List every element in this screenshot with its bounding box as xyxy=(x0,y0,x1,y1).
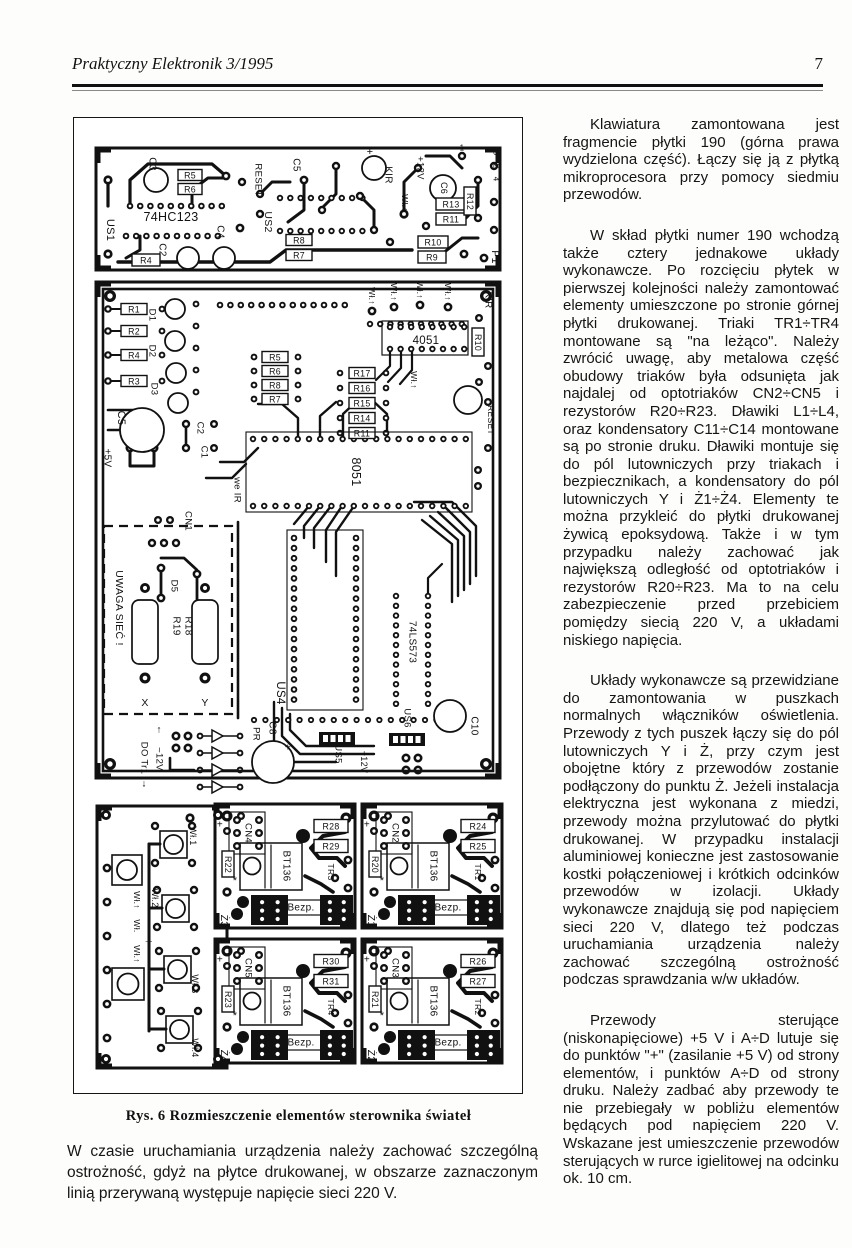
pcb-label: ↑ xyxy=(156,725,161,736)
pcb-ref-label: R27 xyxy=(469,977,486,987)
paragraph-3: Układy wykonawcze są przewidziane do zam… xyxy=(563,672,839,989)
pcb-ref-label: R7 xyxy=(269,395,281,405)
pcb-label-terminal: Ż2 xyxy=(365,1050,378,1063)
pcb-ref-label: R15 xyxy=(353,399,370,409)
pcb-label: Y xyxy=(201,697,208,709)
pcb-label: +12V xyxy=(359,751,369,773)
pcb-ref-label: R2 xyxy=(128,327,140,337)
pcb-label: UWAGA SIEĆ ! xyxy=(113,570,126,646)
pcb-label: Wł.↑ xyxy=(443,283,453,301)
pcb-label: C8 xyxy=(267,721,278,735)
pcb-label: ~12V xyxy=(154,747,165,771)
pcb-label-optotriac: CN5 xyxy=(243,958,254,978)
pcb-label-triac: BT136 xyxy=(281,986,292,1017)
pcb-label: C2 xyxy=(195,422,206,435)
pcb-label: CN1 xyxy=(183,511,194,531)
pcb-label: RESET xyxy=(486,405,496,435)
pcb-ref-label: R20 xyxy=(370,856,380,873)
pcb-label-switch: Wł.1 xyxy=(188,826,198,845)
header-rule xyxy=(72,84,823,91)
pcb-ref-label: R31 xyxy=(322,977,339,987)
pcb-ref-label: R22 xyxy=(223,856,233,873)
pcb-label-switch: Wł.3 xyxy=(190,974,200,993)
pcb-ref-label: R28 xyxy=(322,822,339,832)
pcb-ref-label: R11 xyxy=(443,215,459,225)
pcb-ref-label: R6 xyxy=(184,185,196,195)
pcb-label-triac: BT136 xyxy=(281,851,292,882)
pcb-label: ⊥ xyxy=(145,934,153,944)
pcb-label: C3 xyxy=(147,157,158,171)
pcb-ref-label: R26 xyxy=(469,957,486,967)
pcb-label: C4 xyxy=(215,225,226,239)
pcb-ref-label: R3 xyxy=(128,377,140,387)
pcb-label-fuse: Bezp. xyxy=(434,903,461,914)
pcb-label: Wł.↑ xyxy=(409,371,419,389)
pcb-label: 2 xyxy=(492,164,501,169)
pcb-label: C6 xyxy=(439,182,449,194)
pcb-label: KIR xyxy=(383,166,394,184)
pcb-label-terminal: Ż4 xyxy=(218,1050,231,1063)
pcb-label-fuse: Bezp. xyxy=(434,1038,461,1049)
pcb-ref-label: R6 xyxy=(269,367,281,377)
pcb-label: US4 xyxy=(274,681,286,705)
pcb-label: DO Tr1 xyxy=(139,742,150,774)
pcb-label-optotriac: CN3 xyxy=(390,958,401,978)
magazine-page: Praktyczny Elektronik 3/1995 7 R5R6R4R8R… xyxy=(0,0,852,1248)
pcb-label: TR3 xyxy=(326,864,336,881)
pcb-label: R18 xyxy=(183,616,194,635)
pcb-label: C1 xyxy=(199,446,210,459)
pcb-label-triac: BT136 xyxy=(428,851,439,882)
pcb-label: + xyxy=(367,146,374,158)
pcb-label: +12V xyxy=(415,156,426,180)
pcb-label: TR2 xyxy=(473,999,483,1016)
pcb-label: * xyxy=(233,1010,238,1022)
pcb-ref-label: R8 xyxy=(293,236,305,246)
pcb-label-optotriac: CN2 xyxy=(390,823,401,843)
pcb-label: US2 xyxy=(262,211,274,232)
pcb-label: +5V xyxy=(102,449,113,468)
pcb-label: TR1 xyxy=(473,864,483,881)
pcb-label: Wł.↑ xyxy=(389,283,399,301)
pcb-label: Wł. xyxy=(132,919,142,932)
pcb-ref-label: R8 xyxy=(269,381,281,391)
pcb-ref-label: R1 xyxy=(128,305,140,315)
pcb-label: C2 xyxy=(157,243,168,257)
pcb-label-switch: Wł.4 xyxy=(190,1038,200,1057)
pcb-label: US1 xyxy=(104,219,116,241)
pcb-ref-label: R24 xyxy=(469,822,486,832)
pcb-ref-label: R13 xyxy=(442,200,459,210)
pcb-label: 4 xyxy=(492,177,501,182)
pcb-label-terminal: Ż3 xyxy=(218,915,231,928)
pcb-ref-label: R29 xyxy=(322,842,339,852)
pcb-label-switch: Wł.2 xyxy=(150,888,160,907)
pcb-label: C10 xyxy=(469,716,480,735)
pcb-label: we IR xyxy=(232,476,243,503)
pcb-ref-label: R7 xyxy=(293,251,305,261)
pcb-label: RESET xyxy=(253,163,264,196)
pcb-label: 1 xyxy=(460,144,465,153)
pcb-label: P1 xyxy=(489,250,501,263)
pcb-label: X xyxy=(141,697,148,709)
pcb-label-triac: BT136 xyxy=(428,986,439,1017)
pcb-ref-label: R16 xyxy=(353,384,370,394)
pcb-label: + xyxy=(364,820,370,831)
paragraph-2: W skład płytki numer 190 wchodzą także c… xyxy=(563,227,839,649)
figure-caption: Rys. 6 Rozmieszczenie elementów sterowni… xyxy=(73,1108,524,1125)
pcb-label: D2 xyxy=(147,345,158,358)
pcb-label: KIR xyxy=(483,292,494,309)
pcb-label-fuse: Bezp. xyxy=(287,903,314,914)
pcb-label: Wł.↑ xyxy=(415,281,425,299)
pcb-ref-label: R11 xyxy=(354,429,370,439)
pcb-label: 74HC123 xyxy=(144,210,199,224)
pcb-label: 74LS573 xyxy=(407,621,418,663)
pcb-label: * xyxy=(380,875,385,887)
pcb-svg: R5R6R4R8R7R13R11R10R9R12US1C374HC123C2C4… xyxy=(74,118,522,1093)
pcb-ref-label: R23 xyxy=(223,991,233,1008)
pcb-ref-label: R25 xyxy=(469,842,486,852)
pcb-label: C5 xyxy=(291,158,302,172)
pcb-label: 3 xyxy=(492,151,501,156)
article-column: Klawiatura zamontowana jest fragmencie p… xyxy=(563,116,839,1211)
pcb-label: Wł.↑ xyxy=(132,945,142,963)
warning-paragraph: W czasie uruchamiania urządzenia należy … xyxy=(67,1141,538,1204)
pcb-ref-label: R12 xyxy=(465,193,475,210)
pcb-label: Wł.↑ xyxy=(132,891,142,909)
pcb-label: US6 xyxy=(402,708,413,727)
pcb-label-terminal: Ż1 xyxy=(365,915,378,928)
pcb-label: + xyxy=(285,743,291,754)
pcb-ref-label: R10 xyxy=(424,238,441,248)
pcb-ref-label: R21 xyxy=(370,991,380,1008)
figure-pcb-layout: R5R6R4R8R7R13R11R10R9R12US1C374HC123C2C4… xyxy=(73,117,523,1094)
pcb-ref-label: R5 xyxy=(269,353,281,363)
pcb-label: Wł.↑ xyxy=(367,287,377,305)
pcb-ref-label: R10 xyxy=(473,334,483,351)
pcb-ref-label: R9 xyxy=(426,253,438,263)
paragraph-4: Przewody sterujące (niskonapięciowe) +5 … xyxy=(563,1012,839,1188)
pcb-ref-label: R14 xyxy=(353,414,370,424)
pcb-ref-label: R30 xyxy=(322,957,339,967)
pcb-label: US5 xyxy=(333,744,344,763)
pcb-label: D3 xyxy=(149,383,160,396)
page-header: Praktyczny Elektronik 3/1995 7 xyxy=(72,54,823,78)
pcb-label: 4051 xyxy=(413,335,440,347)
pcb-label: D5 xyxy=(169,580,180,593)
pcb-label: Wł.↑ xyxy=(400,194,410,212)
pcb-label: + xyxy=(217,820,223,831)
pcb-label: ↓ xyxy=(141,779,146,790)
pcb-label: D1 xyxy=(147,309,158,322)
pcb-label: + xyxy=(217,955,223,966)
pcb-label: * xyxy=(380,1010,385,1022)
pcb-ref-label: R4 xyxy=(128,351,140,361)
pcb-label: + xyxy=(364,955,370,966)
pcb-ref-label: R17 xyxy=(353,369,370,379)
pcb-label: PR xyxy=(251,727,262,741)
pcb-ref-label: R4 xyxy=(140,256,152,266)
pcb-label-fuse: Bezp. xyxy=(287,1038,314,1049)
pcb-label-optotriac: CN4 xyxy=(243,823,254,843)
page-number: 7 xyxy=(815,54,824,74)
pcb-label: 8051 xyxy=(349,457,363,486)
pcb-label: C5 xyxy=(115,411,127,426)
pcb-label: R19 xyxy=(171,616,182,635)
pcb-ref-label: R5 xyxy=(184,171,196,181)
pcb-label: TR4 xyxy=(326,999,336,1016)
paragraph-1: Klawiatura zamontowana jest fragmencie p… xyxy=(563,116,839,204)
journal-title: Praktyczny Elektronik 3/1995 xyxy=(72,54,273,74)
pcb-label: * xyxy=(233,875,238,887)
